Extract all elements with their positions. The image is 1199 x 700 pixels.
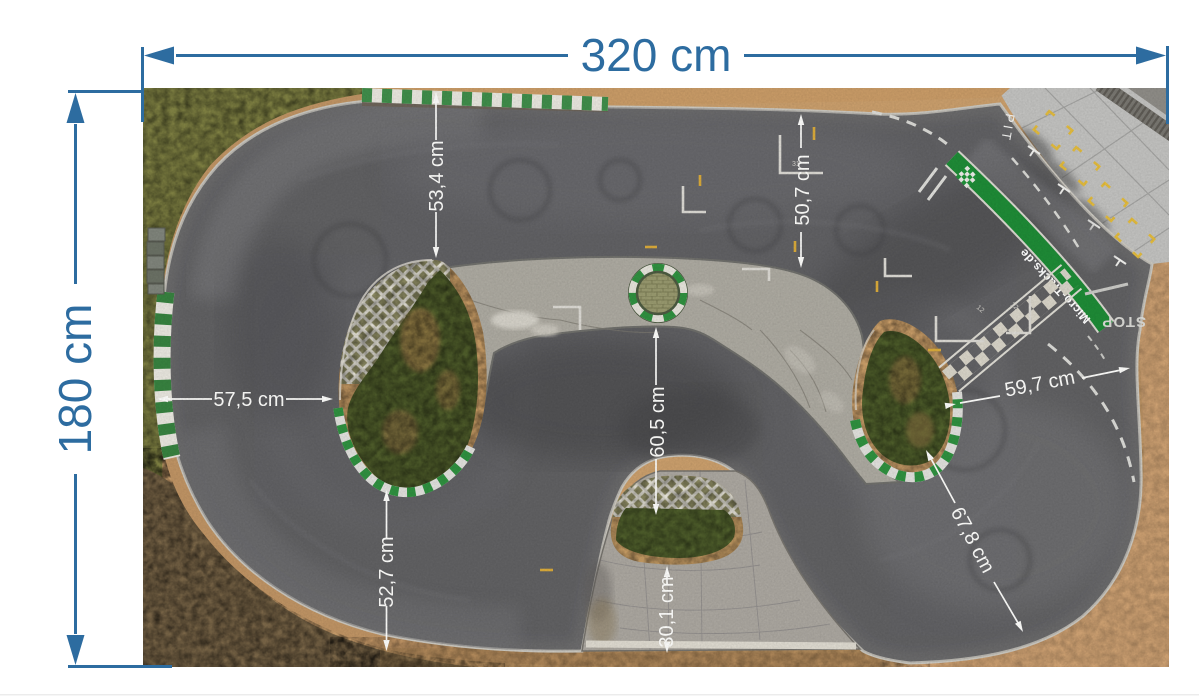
svg-text:180 cm: 180 cm (49, 304, 101, 455)
svg-text:320 cm: 320 cm (581, 29, 732, 81)
